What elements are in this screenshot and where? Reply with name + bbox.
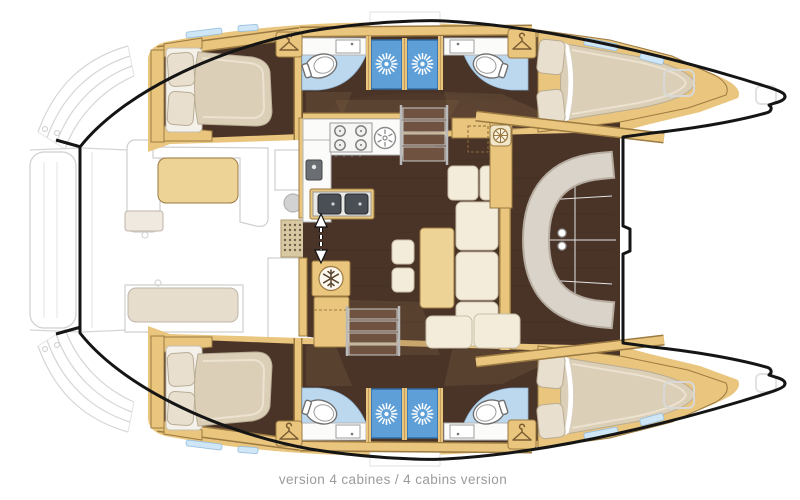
- saloon-table: [420, 228, 454, 308]
- snowflake-icon: [319, 267, 343, 291]
- cockpit-bench-starboard: [125, 280, 243, 332]
- deck-filler-cap: [558, 229, 566, 237]
- stairs-port-hull: [401, 105, 447, 165]
- deck-filler-cap: [558, 242, 566, 250]
- stool: [392, 268, 414, 292]
- floorplan-svg: version 4 cabines / 4 cabins version: [0, 0, 800, 500]
- stool: [392, 240, 414, 264]
- aft-platform: [30, 152, 76, 328]
- galley-cabinet: [314, 297, 349, 347]
- stairs-starboard-hull: [347, 306, 399, 356]
- cockpit-table: [125, 211, 163, 231]
- catamaran-floorplan: version 4 cabines / 4 cabins version: [0, 0, 800, 500]
- coffee-machine-icon: [306, 160, 322, 180]
- fridge: [312, 261, 350, 347]
- stove-burners-icon: [330, 123, 372, 157]
- caption: version 4 cabines / 4 cabins version: [279, 472, 507, 487]
- saloon-aft-wall: [299, 258, 307, 336]
- galley-sinks: [310, 189, 374, 219]
- helm-wheel-icon: [490, 125, 511, 146]
- sink-icon: [318, 194, 341, 214]
- extractor-fan-icon: [375, 128, 396, 149]
- sink-icon: [345, 194, 368, 214]
